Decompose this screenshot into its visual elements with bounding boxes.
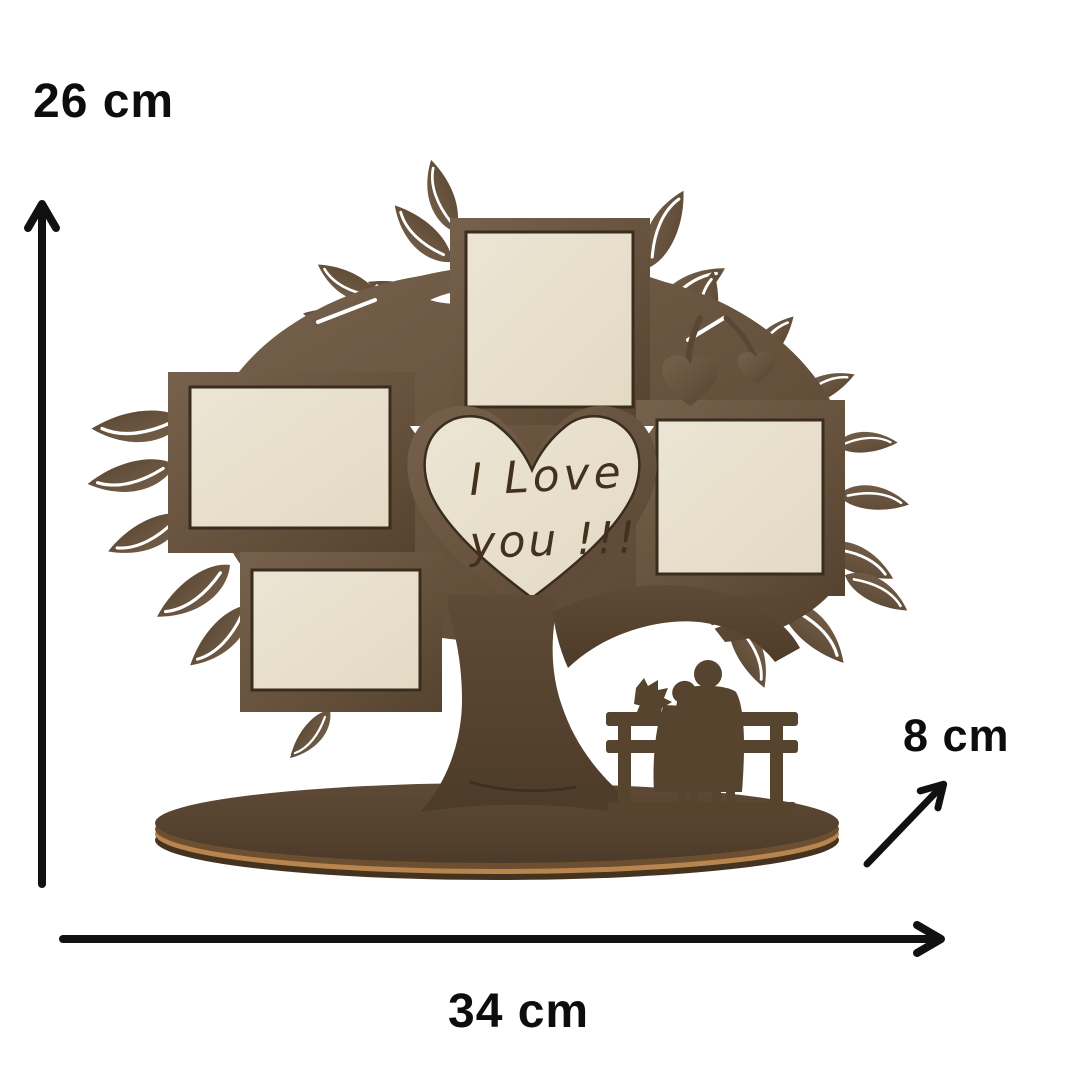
photo-frame-left	[168, 372, 415, 553]
product-photo: I Love you !!!	[0, 0, 1080, 1080]
width-dimension-label: 34 cm	[448, 984, 589, 1039]
product-screenshot: I Love you !!!	[0, 0, 1080, 1080]
photo-frame-top	[450, 218, 650, 425]
depth-dimension-label: 8 cm	[903, 710, 1010, 762]
height-dimension-label: 26 cm	[33, 74, 174, 129]
depth-dimension-arrow	[867, 788, 940, 864]
heart-engraving-line1: I Love	[468, 447, 626, 506]
man-silhouette	[694, 660, 722, 688]
photo-frame-bottom-left	[240, 552, 442, 712]
photo-frame-right	[636, 400, 845, 596]
heart-engraving-line2: you !!!	[467, 512, 639, 569]
tree-trunk	[420, 585, 800, 814]
